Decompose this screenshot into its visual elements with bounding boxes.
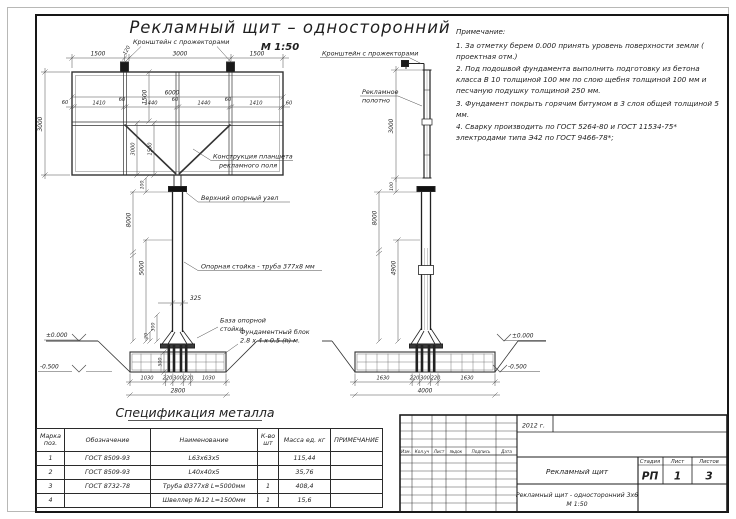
dim-front-pole-total: 8000 bbox=[127, 212, 133, 227]
titleblock-subtitle-1: Рекламный щит - односторонний 3х6 bbox=[516, 492, 638, 499]
dim-brace-b: 1500 bbox=[148, 143, 154, 156]
dim-side-found-4: 220 bbox=[431, 376, 441, 382]
titleblock-col-list: Лист bbox=[433, 449, 445, 454]
dim-front-found-3: 300 bbox=[173, 376, 183, 382]
spec-col-mass: Масса ед. кг bbox=[279, 429, 331, 452]
dim-front-top-1: 1500 bbox=[91, 52, 106, 58]
floodlight-bracket-side bbox=[402, 61, 409, 67]
label-foundation-2: 2.8 х 4 х 0.5 (h) м. bbox=[240, 337, 300, 345]
dim-seg-2: 1410 bbox=[93, 101, 106, 107]
titleblock-subtitle-2: М 1:50 bbox=[566, 501, 587, 508]
spec-row-2: 2 ГОСТ 8509-93 L40х40х5 35,76 bbox=[37, 466, 383, 480]
level-minus-front: -0.500 bbox=[40, 365, 59, 371]
spec-col-qty: К-во шт bbox=[258, 429, 279, 452]
cell-name: Швеллер №12 L=1500мм bbox=[151, 494, 258, 508]
cell-pos: 4 bbox=[37, 494, 65, 508]
dim-front-top-4: 1500 bbox=[250, 52, 265, 58]
front-view-labels: Кронштейн с прожекторами Конструкция пла… bbox=[40, 38, 315, 371]
titleblock-col-ndok: №док bbox=[449, 449, 463, 454]
cell-designation bbox=[65, 494, 151, 508]
cell-mass: 408,4 bbox=[279, 480, 331, 494]
spec-col-name: Наименование bbox=[151, 429, 258, 452]
dim-seg-6: 1440 bbox=[198, 101, 211, 107]
label-front-bracket: Кронштейн с прожекторами bbox=[133, 38, 229, 46]
floodlight-bracket-left bbox=[121, 62, 129, 72]
spec-col-note: ПРИМЕЧАНИЕ bbox=[331, 429, 383, 452]
spec-col-pos: Марка поз. bbox=[37, 429, 65, 452]
cell-qty bbox=[258, 452, 279, 466]
titleblock-col-podpis: Подпись bbox=[472, 449, 491, 454]
notes-heading: Примечание: bbox=[456, 27, 726, 38]
upper-support-node bbox=[169, 187, 187, 192]
dim-seg-9: 60 bbox=[286, 101, 292, 107]
titleblock-doc-name: Рекламный щит bbox=[546, 467, 609, 476]
pole-base-plate-side bbox=[410, 344, 443, 348]
note-item-1: 1. За отметку берем 0.000 принять уровен… bbox=[456, 41, 726, 63]
dim-side-found-1: 1630 bbox=[377, 376, 390, 382]
upper-support-node-side bbox=[417, 187, 435, 192]
label-banner-1: Рекламное bbox=[362, 88, 399, 96]
label-top-node: Верхний опорный узел bbox=[201, 194, 278, 202]
dim-front-width-total: 6000 bbox=[165, 91, 180, 97]
cell-pos: 3 bbox=[37, 480, 65, 494]
titleblock-year: 2012 г. bbox=[522, 423, 545, 430]
cell-note bbox=[331, 480, 383, 494]
level-zero-front: ±0.000 bbox=[46, 333, 68, 339]
cell-designation: ГОСТ 8509-93 bbox=[65, 466, 151, 480]
dim-front-height: 3000 bbox=[38, 116, 44, 131]
dim-side-found-total: 4000 bbox=[418, 389, 433, 395]
dim-front-found-5: 1030 bbox=[202, 376, 215, 382]
dim-side-found-3: 300 bbox=[420, 376, 430, 382]
dim-seg-4: 1440 bbox=[145, 101, 158, 107]
level-zero-side: ±0.000 bbox=[512, 334, 534, 340]
label-pole: Опорная стойка - труба 377х8 мм bbox=[201, 263, 315, 271]
dim-front-top-2: 120 bbox=[122, 45, 132, 56]
dim-base-b: 20 bbox=[144, 333, 150, 339]
spec-row-3: 3 ГОСТ 8732-78 Труба Ø377х8 L=5000мм 1 4… bbox=[37, 480, 383, 494]
cell-qty: 1 bbox=[258, 480, 279, 494]
spec-col-designation: Обозначение bbox=[65, 429, 151, 452]
titleblock-stage-label: Стадия bbox=[640, 459, 661, 465]
cell-name: Труба Ø377х8 L=5000мм bbox=[151, 480, 258, 494]
titleblock-sheets-label: Листов bbox=[698, 459, 719, 465]
dim-seg-3: 60 bbox=[119, 97, 125, 103]
drawing-sheet: Рекламный щит – односторонний М 1:50 bbox=[0, 0, 736, 519]
spec-header-row: Марка поз. Обозначение Наименование К-во… bbox=[37, 429, 383, 452]
dim-side-found-5: 1630 bbox=[461, 376, 474, 382]
titleblock-stage-value: РП bbox=[642, 471, 659, 483]
cell-note bbox=[331, 466, 383, 480]
side-view-structure bbox=[402, 61, 443, 349]
cell-mass: 35,76 bbox=[279, 466, 331, 480]
dim-front-found-2: 220 bbox=[163, 376, 173, 382]
dim-side-height: 3000 bbox=[389, 118, 395, 133]
dim-seg-1: 60 bbox=[62, 100, 68, 106]
dim-side-gap: 100 bbox=[389, 182, 395, 191]
sheet-scale: М 1:50 bbox=[261, 42, 299, 53]
cell-qty bbox=[258, 466, 279, 480]
label-side-bracket: Кронштейн с прожекторами bbox=[322, 50, 418, 58]
dim-seg-8: 1410 bbox=[250, 101, 263, 107]
dim-front-top-3: 3000 bbox=[173, 52, 188, 58]
cell-name: L40х40х5 bbox=[151, 466, 258, 480]
spec-row-4: 4 Швеллер №12 L=1500мм 1 15,6 bbox=[37, 494, 383, 508]
titleblock-col-izm: Изм. bbox=[401, 449, 411, 454]
label-base-1: База опорной bbox=[220, 317, 266, 325]
note-item-3: 3. Фундамент покрыть горячим битумом в 3… bbox=[456, 99, 726, 121]
note-item-4: 4. Сварку производить по ГОСТ 5264-80 и … bbox=[456, 122, 726, 144]
sheet-title: Рекламный щит – односторонний bbox=[129, 18, 450, 37]
floodlight-bracket-right bbox=[227, 62, 235, 72]
dim-front-pole-lower: 5000 bbox=[140, 260, 146, 275]
front-view-pole bbox=[161, 175, 195, 348]
spec-heading: Спецификация металла bbox=[115, 405, 274, 420]
dim-brace-a: 3000 bbox=[131, 143, 137, 156]
dim-found-depth: 500 bbox=[158, 358, 164, 367]
spec-table: Марка поз. Обозначение Наименование К-во… bbox=[36, 428, 383, 508]
notes-block: Примечание: 1. За отметку берем 0.000 пр… bbox=[456, 27, 726, 146]
cell-mass: 15,6 bbox=[279, 494, 331, 508]
titleblock-col-koluch: Кол.уч bbox=[415, 449, 430, 454]
dim-front-found-total: 2800 bbox=[171, 389, 186, 395]
cell-note bbox=[331, 452, 383, 466]
titleblock-sheets-value: 3 bbox=[705, 471, 712, 483]
titleblock-sheet-label: Лист bbox=[670, 459, 685, 465]
dim-side-found-2: 220 bbox=[410, 376, 420, 382]
dim-side-pole-total: 8000 bbox=[373, 210, 379, 225]
label-panel-structure-2: рекламного поля bbox=[218, 162, 277, 170]
cell-pos: 2 bbox=[37, 466, 65, 480]
dim-front-found-4: 220 bbox=[184, 376, 194, 382]
dim-pole-width: 325 bbox=[190, 296, 201, 302]
cell-designation: ГОСТ 8509-93 bbox=[65, 452, 151, 466]
dim-base-a: 300 bbox=[151, 323, 157, 332]
spec-row-1: 1 ГОСТ 8509-93 L63х63х5 115,44 bbox=[37, 452, 383, 466]
label-panel-structure-1: Конструкция планшета bbox=[213, 153, 293, 161]
label-foundation-1: Фундаментный блок bbox=[240, 328, 310, 336]
pole-base-plate bbox=[161, 344, 195, 348]
dim-front-found-1: 1030 bbox=[141, 376, 154, 382]
cell-pos: 1 bbox=[37, 452, 65, 466]
dim-seg-5: 60 bbox=[172, 97, 178, 103]
dim-seg-7: 60 bbox=[225, 97, 231, 103]
note-item-2: 2. Под подошвой фундамента выполнить под… bbox=[456, 64, 726, 96]
titleblock-sheet-value: 1 bbox=[674, 471, 681, 483]
cell-mass: 115,44 bbox=[279, 452, 331, 466]
cell-designation: ГОСТ 8732-78 bbox=[65, 480, 151, 494]
dim-front-gap: 100 bbox=[140, 181, 146, 190]
cell-note bbox=[331, 494, 383, 508]
cell-name: L63х63х5 bbox=[151, 452, 258, 466]
level-minus-side: -0.500 bbox=[508, 365, 527, 371]
cell-qty: 1 bbox=[258, 494, 279, 508]
label-banner-2: полотно bbox=[362, 97, 390, 105]
titleblock-col-data: Дата bbox=[500, 449, 512, 454]
dim-side-pole-lower: 4900 bbox=[392, 260, 398, 275]
